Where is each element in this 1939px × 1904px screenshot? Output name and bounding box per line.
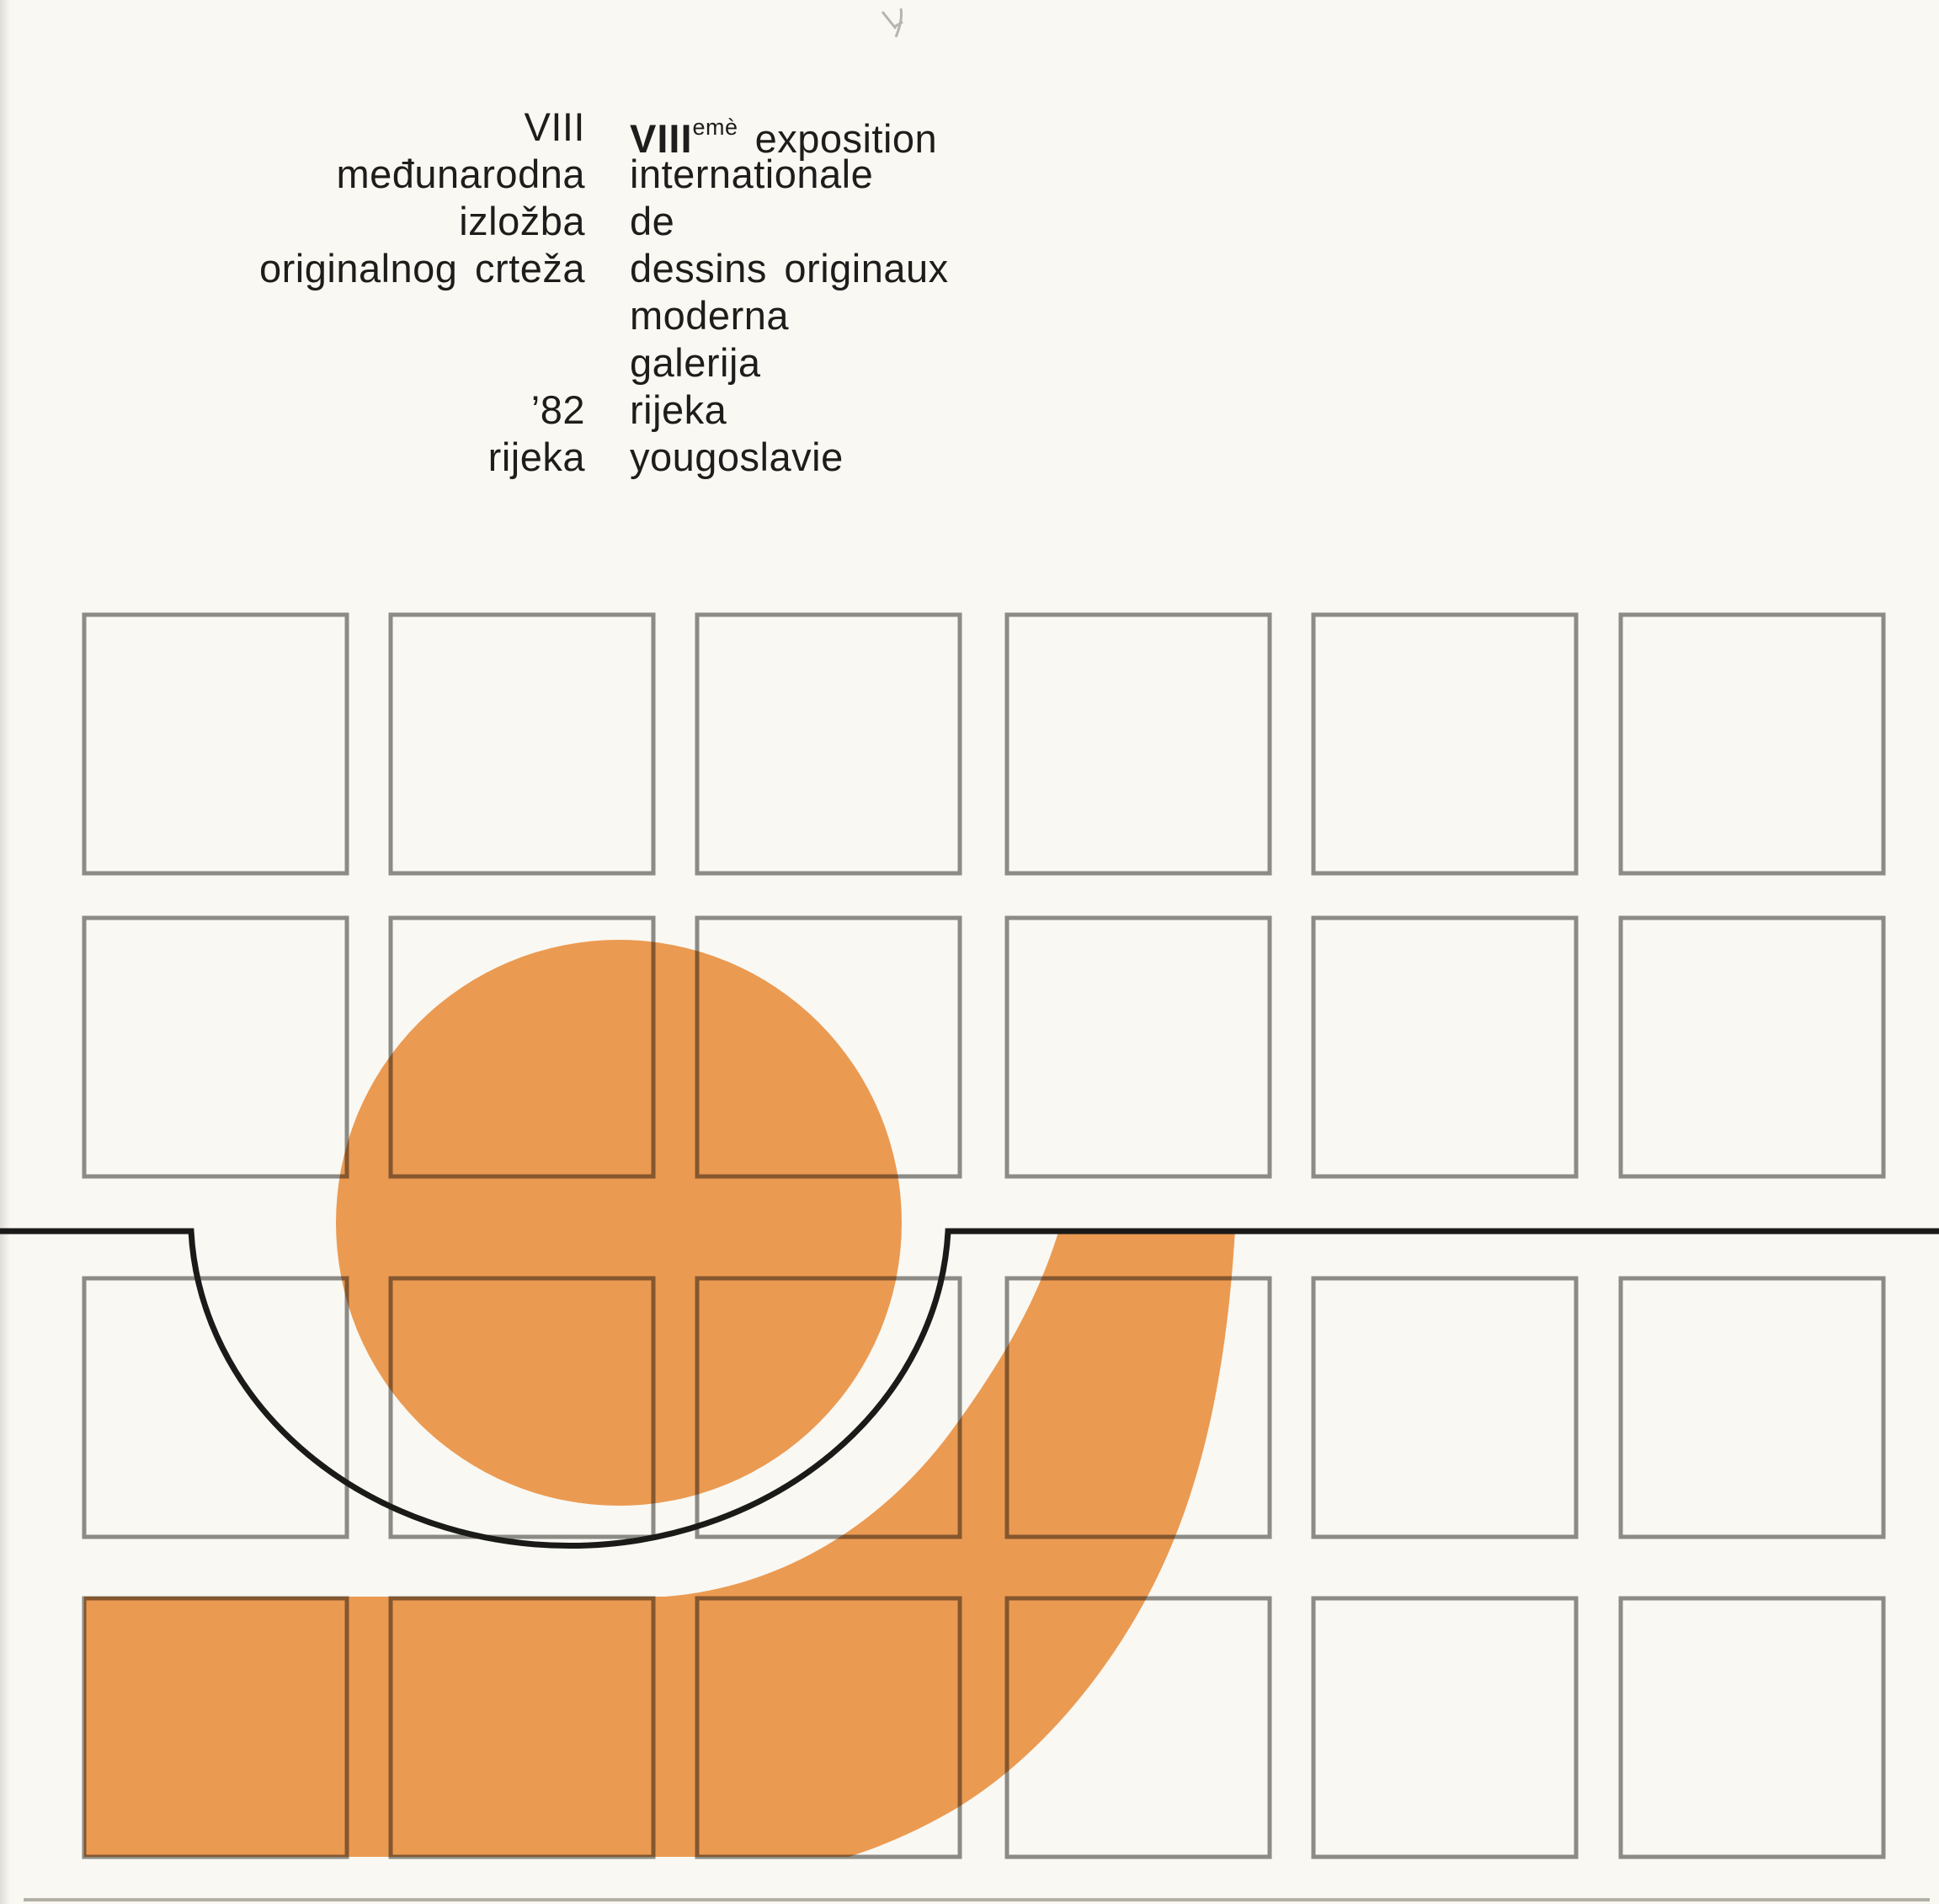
title-french: VIIIemèexposition internationale de dess… (630, 104, 1808, 481)
grid-square (1621, 1278, 1883, 1537)
orange-circle (336, 940, 902, 1506)
title-line: de (630, 198, 1808, 245)
title-line: rijeka (0, 434, 585, 481)
grid-square (84, 918, 347, 1176)
grid-square (697, 615, 960, 873)
grid-square (1313, 1598, 1576, 1857)
grid-square (1621, 918, 1883, 1176)
title-croatian: VIII međunarodna izložba originalnog crt… (0, 104, 585, 481)
title-line: dessins originaux (630, 245, 1808, 292)
title-line: internationale (630, 151, 1808, 198)
title-line: međunarodna (0, 151, 585, 198)
grid-square (1313, 918, 1576, 1176)
grid-square (391, 615, 653, 873)
ordinal-superscript: emè (693, 115, 738, 140)
grid-square (1313, 1278, 1576, 1537)
title-line-ordinal: VIIIemèexposition (630, 104, 1808, 151)
grid-square (1007, 918, 1270, 1176)
grid-square (1621, 615, 1883, 873)
catalog-cover: VIII međunarodna izložba originalnog crt… (0, 0, 1939, 1904)
title-line: originalnog crteža (0, 245, 585, 292)
title-line: galerija (630, 339, 1808, 387)
title-line-year: ’82 (0, 387, 585, 434)
title-line: moderna (630, 292, 1808, 339)
title-line: yougoslavie (630, 434, 1808, 481)
grid-square (84, 1278, 347, 1537)
grid-square (1313, 615, 1576, 873)
grid-square (1007, 615, 1270, 873)
grid-square (84, 615, 347, 873)
pencil-mark (882, 8, 903, 37)
title-line: VIII (0, 104, 585, 151)
grid-square (1621, 1598, 1883, 1857)
title-line: rijeka (630, 387, 1808, 434)
title-line: izložba (0, 198, 585, 245)
